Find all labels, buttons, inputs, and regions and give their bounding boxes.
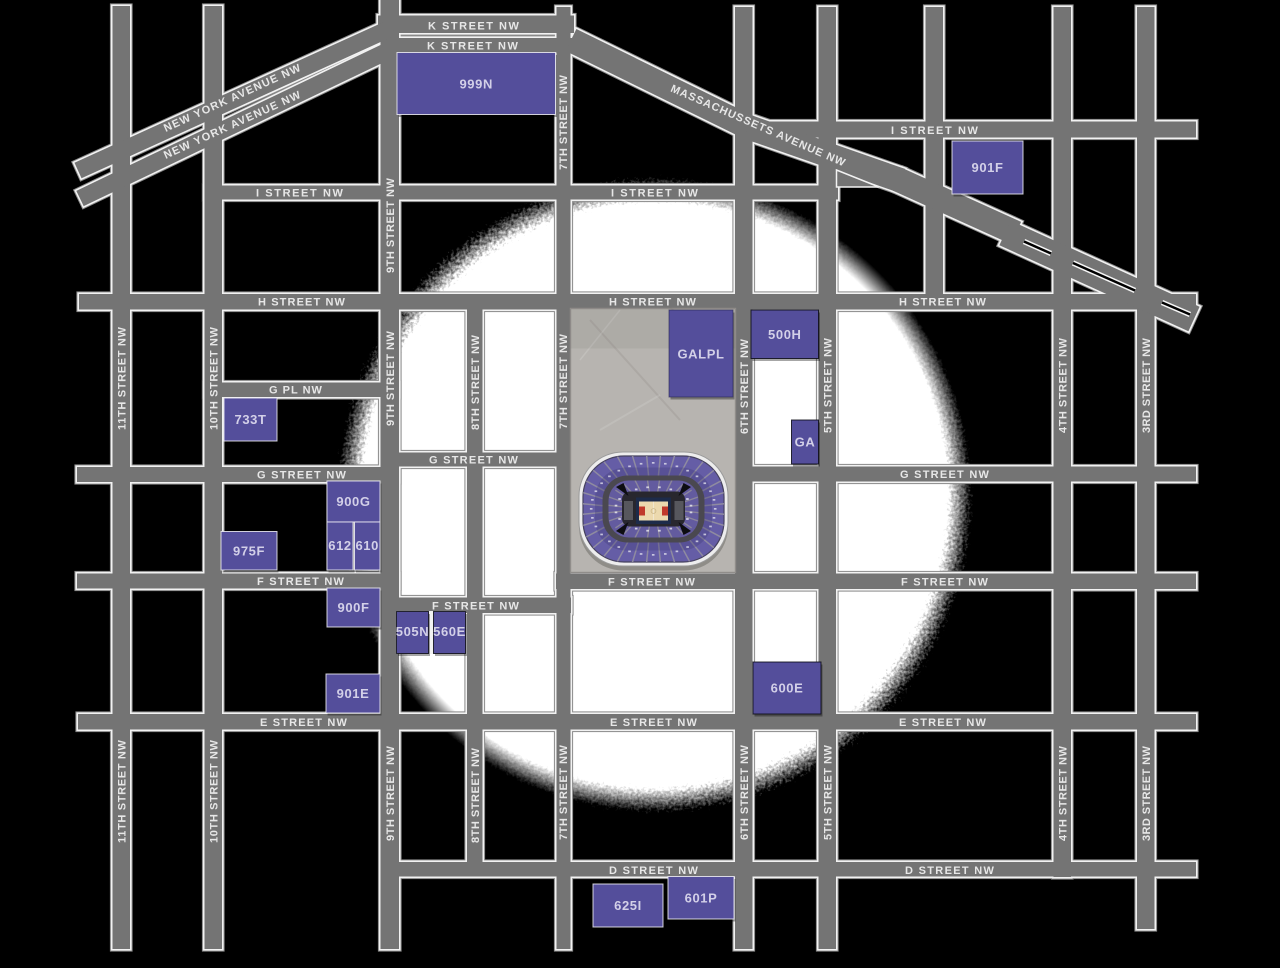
svg-text:F STREET NW: F STREET NW <box>901 577 989 589</box>
svg-text:G STREET NW: G STREET NW <box>900 469 990 481</box>
svg-text:E STREET NW: E STREET NW <box>899 717 987 729</box>
svg-text:GALPL: GALPL <box>677 347 724 362</box>
svg-text:901F: 901F <box>971 160 1003 175</box>
svg-text:G PL NW: G PL NW <box>269 385 323 397</box>
svg-text:600E: 600E <box>771 681 804 696</box>
svg-text:K STREET NW: K STREET NW <box>428 21 520 33</box>
svg-text:5TH STREET NW: 5TH STREET NW <box>823 744 835 840</box>
svg-text:3RD STREET NW: 3RD STREET NW <box>1141 745 1153 841</box>
svg-text:8TH STREET NW: 8TH STREET NW <box>470 747 482 843</box>
svg-text:H STREET NW: H STREET NW <box>899 297 987 309</box>
svg-text:733T: 733T <box>234 412 266 427</box>
svg-text:6TH STREET NW: 6TH STREET NW <box>739 744 751 840</box>
svg-text:900F: 900F <box>337 600 369 615</box>
svg-text:D STREET NW: D STREET NW <box>609 865 699 877</box>
svg-text:612: 612 <box>328 538 352 553</box>
svg-text:H STREET NW: H STREET NW <box>609 297 697 309</box>
svg-text:E STREET NW: E STREET NW <box>260 717 348 729</box>
svg-text:G STREET NW: G STREET NW <box>257 470 347 482</box>
svg-text:4TH STREET NW: 4TH STREET NW <box>1058 337 1070 433</box>
svg-text:F STREET NW: F STREET NW <box>257 576 345 588</box>
svg-text:4TH STREET NW: 4TH STREET NW <box>1058 745 1070 841</box>
svg-text:3RD STREET NW: 3RD STREET NW <box>1141 337 1153 433</box>
svg-text:11TH STREET NW: 11TH STREET NW <box>117 326 129 430</box>
svg-text:I STREET NW: I STREET NW <box>611 188 699 200</box>
svg-text:560E: 560E <box>433 624 466 639</box>
svg-text:10TH STREET NW: 10TH STREET NW <box>209 326 221 430</box>
svg-text:900G: 900G <box>336 494 370 509</box>
svg-text:9TH STREET NW: 9TH STREET NW <box>385 177 397 273</box>
svg-text:5TH STREET NW: 5TH STREET NW <box>823 337 835 433</box>
svg-text:601P: 601P <box>685 890 718 905</box>
svg-text:8TH STREET NW: 8TH STREET NW <box>470 334 482 430</box>
svg-text:7TH STREET NW: 7TH STREET NW <box>558 744 570 840</box>
svg-text:E STREET NW: E STREET NW <box>610 717 698 729</box>
svg-text:H STREET NW: H STREET NW <box>258 297 346 309</box>
svg-text:F STREET NW: F STREET NW <box>608 577 696 589</box>
svg-text:901E: 901E <box>337 686 370 701</box>
svg-text:K STREET NW: K STREET NW <box>427 41 519 53</box>
svg-text:505N: 505N <box>396 624 429 639</box>
svg-text:I STREET NW: I STREET NW <box>256 188 344 200</box>
svg-text:F STREET NW: F STREET NW <box>432 601 520 613</box>
svg-text:7TH STREET NW: 7TH STREET NW <box>558 74 570 170</box>
svg-text:9TH STREET NW: 9TH STREET NW <box>385 330 397 426</box>
svg-text:10TH STREET NW: 10TH STREET NW <box>209 739 221 843</box>
svg-text:975F: 975F <box>233 543 265 558</box>
svg-text:G STREET NW: G STREET NW <box>429 455 519 467</box>
svg-text:500H: 500H <box>768 327 801 342</box>
svg-text:11TH STREET NW: 11TH STREET NW <box>117 739 129 843</box>
svg-text:I STREET NW: I STREET NW <box>891 125 979 137</box>
svg-text:625I: 625I <box>614 898 642 913</box>
svg-text:999N: 999N <box>459 77 492 92</box>
svg-text:9TH STREET NW: 9TH STREET NW <box>385 745 397 841</box>
svg-text:610: 610 <box>355 538 379 553</box>
svg-text:D STREET NW: D STREET NW <box>905 865 995 877</box>
svg-text:6TH STREET NW: 6TH STREET NW <box>739 338 751 434</box>
svg-text:GA: GA <box>795 434 816 449</box>
svg-text:7TH STREET NW: 7TH STREET NW <box>558 333 570 429</box>
